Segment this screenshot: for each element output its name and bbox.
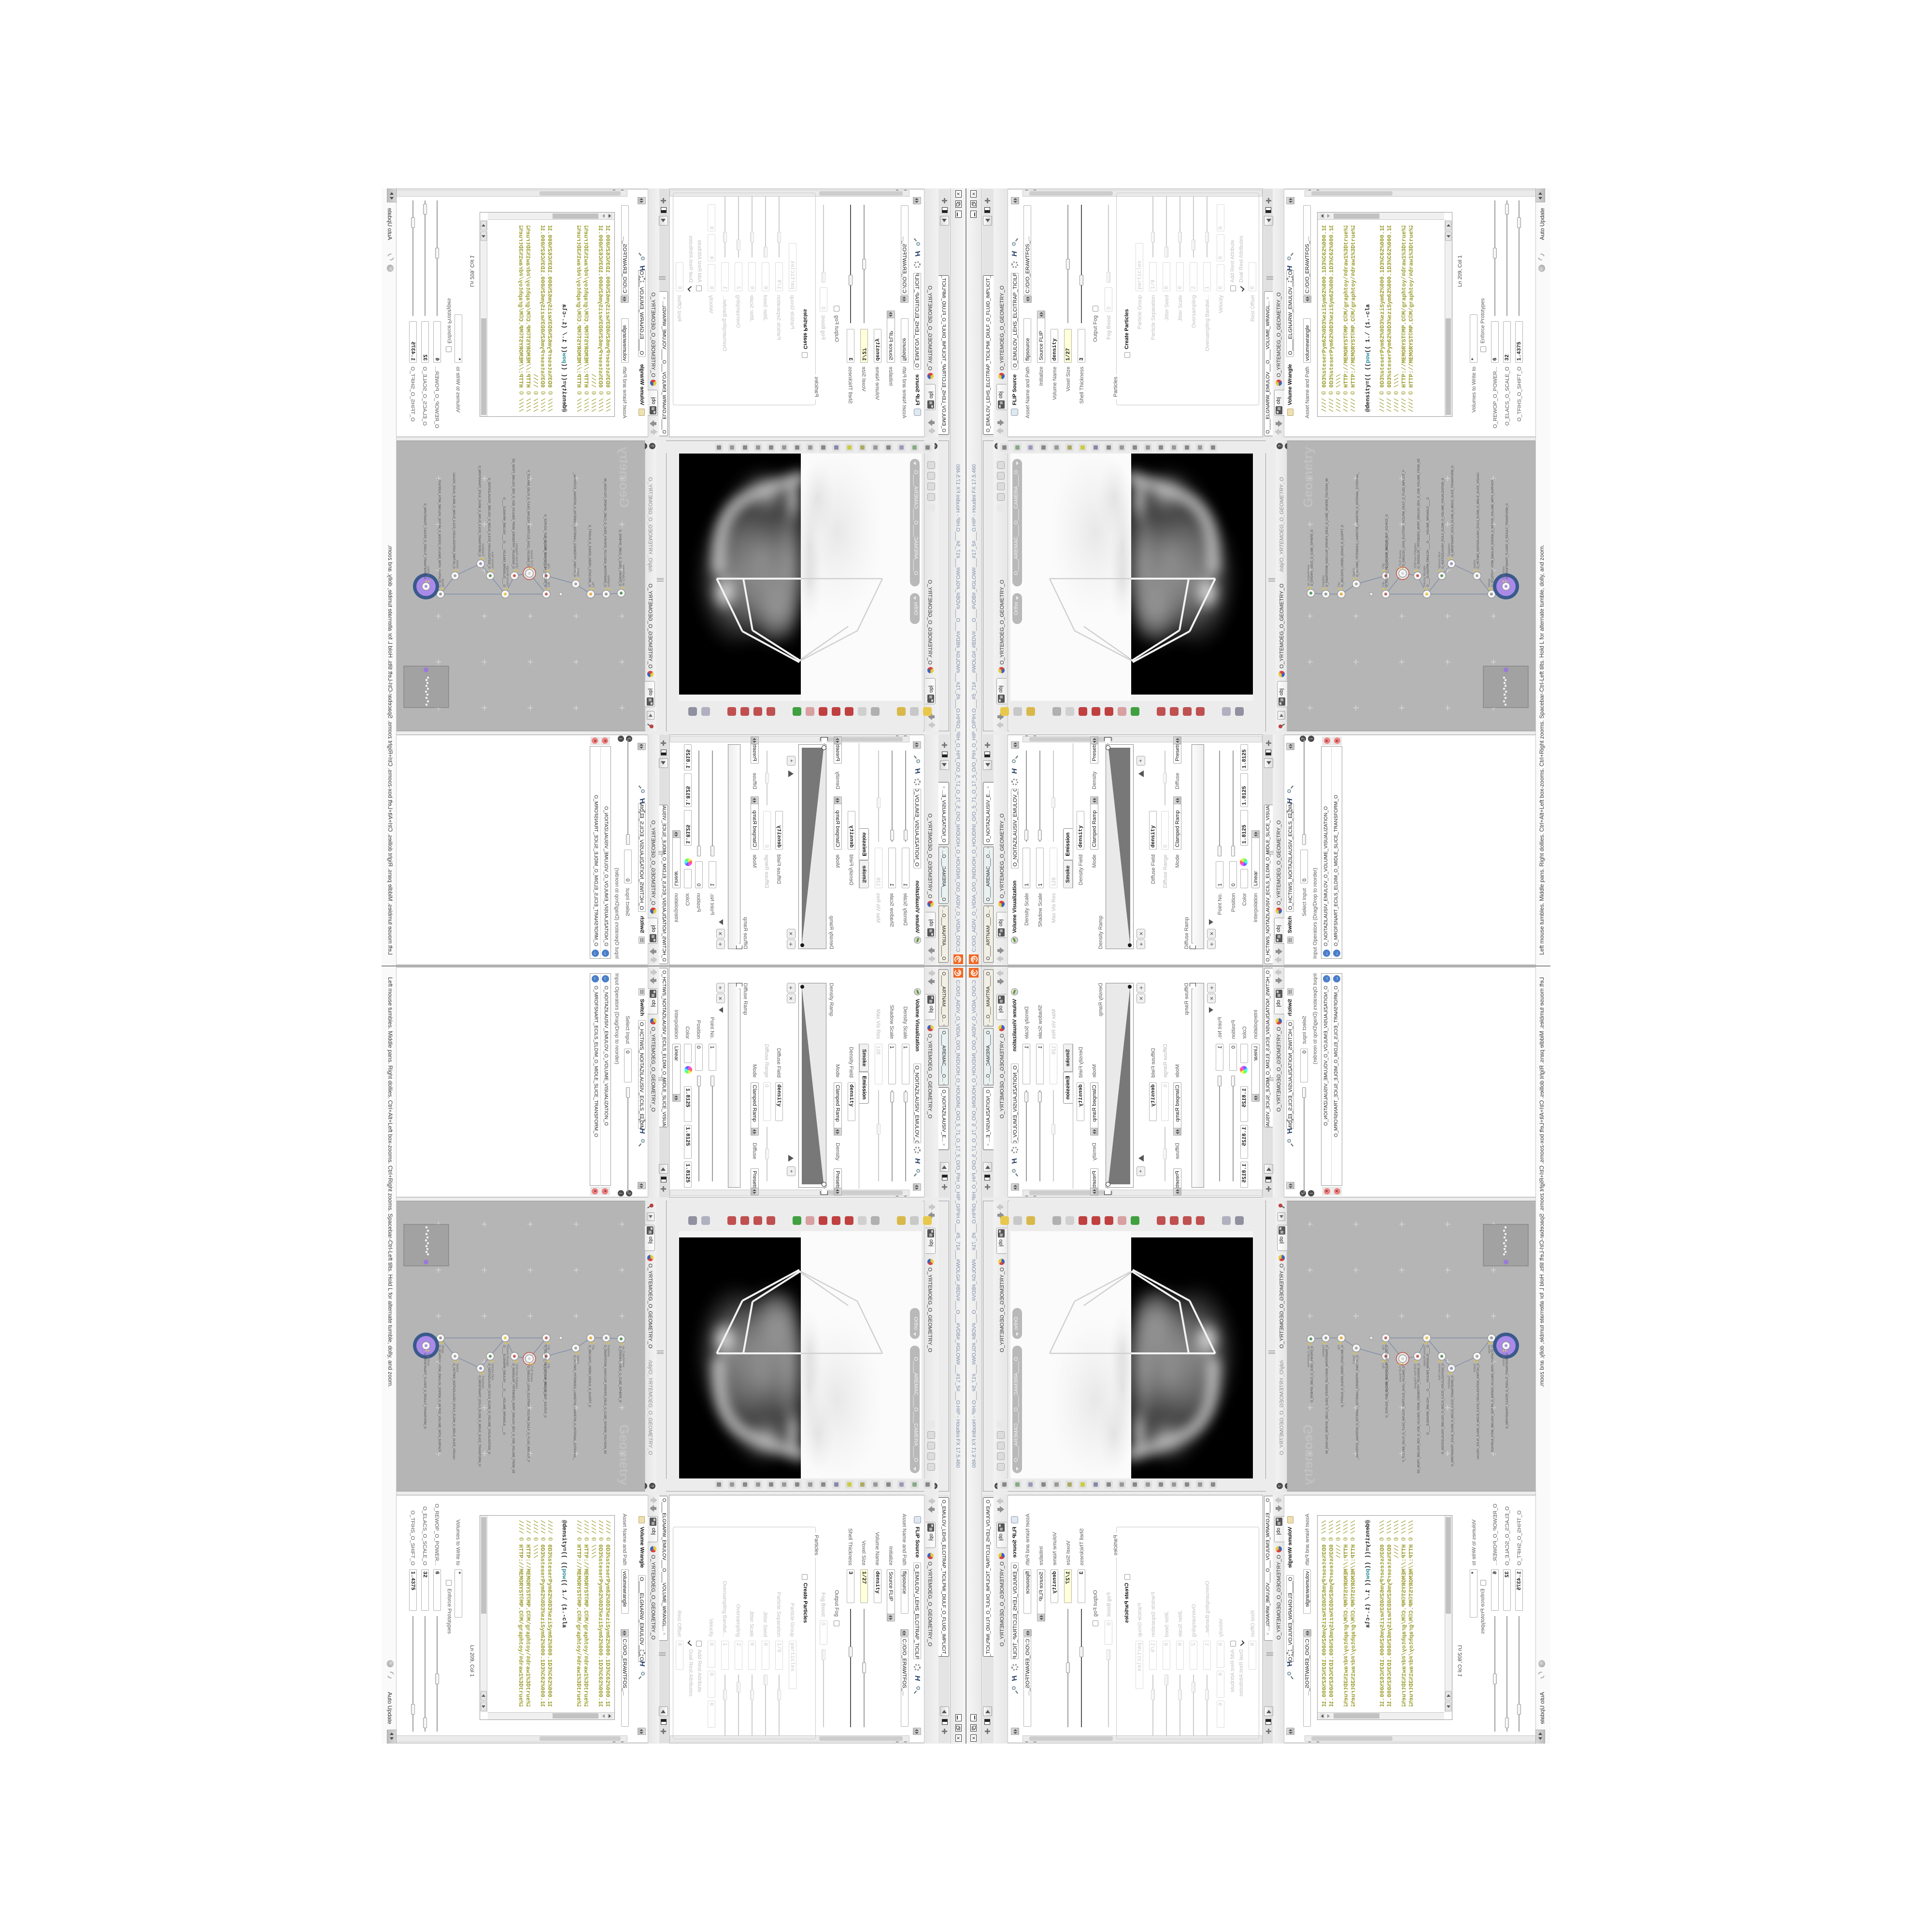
svg-text:O_JBO.DATS_LREBO_GENUS_O_SLOPP: O_JBO.DATS_LREBO_GENUS_O_SLOPPT_O <box>1341 1345 1344 1407</box>
svg-text:an_CubeSphere: an_CubeSphere <box>622 1346 625 1367</box>
svg-text:PolyWire: PolyWire <box>1322 1345 1325 1357</box>
svg-text:O_MROFSNART_ECILS_ELDIM_O_MIDL: O_MROFSNART_ECILS_ELDIM_O_MIDLE_SLICE_TR… <box>1451 466 1454 556</box>
svg-text:Merge: Merge <box>1488 578 1491 587</box>
svg-text:O_SNOGILOP_YRTEMOEG_MORF_EMULO: O_SNOGILOP_YRTEMOEG_MORF_EMULOV_BDV_O_VD… <box>1418 1364 1421 1474</box>
svg-text:Merge: Merge <box>441 1345 444 1354</box>
svg-text:O_ECAFRUS_HTIW_EMULOV_EGREM_O_: O_ECAFRUS_HTIW_EMULOV_EGREM_O_MERGE_VOLU… <box>1492 1345 1494 1454</box>
svg-text:Switch: Switch <box>576 568 579 577</box>
svg-text:O_EMULOV_LEHS_ELCITRAP_TICILPM: O_EMULOV_LEHS_ELCITRAP_TICILPMI_DIULF_O_… <box>1403 1366 1406 1462</box>
svg-text:O____ELGNARW_EMULOV____O____VO: O____ELGNARW_EMULOV____O____VOLUME_WRANG… <box>1427 497 1430 587</box>
svg-text:PolyWire: PolyWire <box>607 575 610 587</box>
svg-text:O_HCTIWS_YRTEMOEG_LANRETXE_LAN: O_HCTIWS_YRTEMOEG_LANRETXE_LANRETNI_O_IN… <box>1356 472 1359 577</box>
svg-text:Switch: Switch <box>1353 568 1356 577</box>
svg-text:O_EMULOV_LEHS_ELCITRAP_TICILPM: O_EMULOV_LEHS_ELCITRAP_TICILPMI_DIULF_O_… <box>526 470 529 566</box>
svg-text:Volume Slice: Volume Slice <box>491 552 494 568</box>
svg-text:O_HCTIWS_NOITAZILAUSIV_ECILS_E: O_HCTIWS_NOITAZILAUSIV_ECILS_ELDIM_O_MID… <box>452 472 455 568</box>
svg-text:PolyWire: PolyWire <box>607 1345 610 1357</box>
svg-text:O_EREHPS_EBUC_D_CUBE_SPHERE_O: O_EREHPS_EBUC_D_CUBE_SPHERE_O <box>1311 1346 1314 1403</box>
svg-text:O_SNOGILOP_YRTEMOEG_MORF_EMULO: O_SNOGILOP_YRTEMOEG_MORF_EMULOV_BDV_O_VD… <box>511 1364 514 1474</box>
svg-text:Clip: Clip <box>1382 563 1385 568</box>
svg-text:VDB from Polygons: VDB from Polygons <box>515 543 518 568</box>
svg-text:Switch: Switch <box>455 1364 458 1372</box>
svg-text:O_ECAFRUS_HTIW_EMULOV_EGREM_O_: O_ECAFRUS_HTIW_EMULOV_EGREM_O_MERGE_VOLU… <box>1492 478 1494 587</box>
svg-text:Geometry: Geometry <box>617 1424 631 1485</box>
svg-text:Switch: Switch <box>576 1355 579 1364</box>
svg-text:O_MROFSNART_TLUSER_O_RESULT_TR: O_MROFSNART_TLUSER_O_RESULT_TRANSFORM_O <box>1506 503 1509 579</box>
svg-text:Transform: Transform <box>481 543 484 556</box>
svg-text:FLIP Source: FLIP Source <box>530 550 533 566</box>
svg-text:O_EMULOV_LEHS_ELCITRAP_TICILPM: O_EMULOV_LEHS_ELCITRAP_TICILPMI_DIULF_O_… <box>1403 470 1406 566</box>
svg-text:O_HCTIWS_YRTEMOEG_LANRETXE_LAN: O_HCTIWS_YRTEMOEG_LANRETXE_LANRETNI_O_IN… <box>1356 1355 1359 1460</box>
svg-text:O_JBO.DATS_LREBO_GENUS_O_SLOPP: O_JBO.DATS_LREBO_GENUS_O_SLOPPT_O <box>1341 525 1344 587</box>
svg-text:O_ECAFRUS_HTIW_EMULOV_EGREM_O_: O_ECAFRUS_HTIW_EMULOV_EGREM_O_MERGE_VOLU… <box>438 478 440 587</box>
svg-text:O_EMARFERIW_NOGYLOP_EREHPS_EBU: O_EMARFERIW_NOGYLOP_EREHPS_EBUC_O_CUBE_S… <box>603 478 606 587</box>
svg-text:Volume Wrangle: Volume Wrangle <box>506 565 509 587</box>
svg-text:O_EGDIRB_PILC_O_CLIP_BRIDGE_O: O_EGDIRB_PILC_O_CLIP_BRIDGE_O <box>1386 535 1389 587</box>
svg-text:Clip: Clip <box>547 582 550 587</box>
svg-text:Transform: Transform <box>426 1353 429 1366</box>
svg-text:O_MROFSNART_ECILS_ELDIM_O_MIDL: O_MROFSNART_ECILS_ELDIM_O_MIDLE_SLICE_TR… <box>478 1376 481 1466</box>
svg-text:O_JBO.DATS_LREBO_GENUS_O_SLOPP: O_JBO.DATS_LREBO_GENUS_O_SLOPPT_O <box>588 1345 591 1407</box>
svg-text:O_HCTIWS_NOITAZILAUSIV_ECILS_E: O_HCTIWS_NOITAZILAUSIV_ECILS_ELDIM_O_MID… <box>1477 472 1480 568</box>
svg-text:Merge: Merge <box>1488 1345 1491 1354</box>
svg-text:O_HCTIWS_YRTEMOEG_LANRETXE_LAN: O_HCTIWS_YRTEMOEG_LANRETXE_LANRETNI_O_IN… <box>573 1355 576 1460</box>
svg-text:Volume Wrangle: Volume Wrangle <box>1423 1345 1426 1367</box>
svg-text:O_ECAFRUS_HTIW_EMULOV_EGREM_O_: O_ECAFRUS_HTIW_EMULOV_EGREM_O_MERGE_VOLU… <box>438 1345 440 1454</box>
svg-text:O_MROFSNART_TLUSER_O_RESULT_TR: O_MROFSNART_TLUSER_O_RESULT_TRANSFORM_O <box>423 503 426 579</box>
svg-text:O_EGDIRB_PILC_O_CLIP_BRIDGE_O: O_EGDIRB_PILC_O_CLIP_BRIDGE_O <box>543 535 546 587</box>
svg-text:Clip: Clip <box>1382 1345 1385 1350</box>
svg-text:O_EMULOV_LEHS_ELCITRAP_TICILPM: O_EMULOV_LEHS_ELCITRAP_TICILPMI_DIULF_O_… <box>526 1366 529 1462</box>
svg-text:Switch: Switch <box>1474 1364 1477 1372</box>
svg-text:Clip: Clip <box>1382 1364 1385 1369</box>
svg-text:Transform: Transform <box>1503 1353 1506 1366</box>
svg-text:O_NOITAZILAUSIV_ECILS_ELDIM_O_: O_NOITAZILAUSIV_ECILS_ELDIM_O_VOLUME_VIS… <box>1442 1364 1445 1454</box>
svg-text:O_EREHPS_EBUC_D_CUBE_SPHERE_O: O_EREHPS_EBUC_D_CUBE_SPHERE_O <box>618 529 621 586</box>
svg-text:Volume Slice: Volume Slice <box>1438 552 1441 568</box>
svg-text:O____ELGNARW_EMULOV____O____VO: O____ELGNARW_EMULOV____O____VOLUME_WRANG… <box>502 1345 505 1435</box>
svg-text:O_MROFSNART_ECILS_ELDIM_O_MIDL: O_MROFSNART_ECILS_ELDIM_O_MIDLE_SLICE_TR… <box>478 466 481 556</box>
svg-text:O____ELGNARW_EMULOV____O____VO: O____ELGNARW_EMULOV____O____VOLUME_WRANG… <box>1427 1345 1430 1435</box>
svg-text:O_NOITAZILAUSIV_ECILS_ELDIM_O_: O_NOITAZILAUSIV_ECILS_ELDIM_O_VOLUME_VIS… <box>487 1364 490 1454</box>
svg-text:O_NOITAZILAUSIV_ECILS_ELDIM_O_: O_NOITAZILAUSIV_ECILS_ELDIM_O_VOLUME_VIS… <box>1442 478 1445 568</box>
svg-text:Transform: Transform <box>1448 543 1451 556</box>
svg-text:Transform: Transform <box>481 1376 484 1389</box>
svg-text:FLIP Source: FLIP Source <box>530 1366 533 1382</box>
svg-text:File: File <box>591 1345 594 1350</box>
svg-text:Clip: Clip <box>547 1364 550 1369</box>
svg-text:FLIP Source: FLIP Source <box>1399 550 1402 566</box>
svg-text:an_CubeSphere: an_CubeSphere <box>1307 565 1310 586</box>
svg-text:PolyWire: PolyWire <box>1322 575 1325 587</box>
svg-text:FLIP Source: FLIP Source <box>1399 1366 1402 1382</box>
svg-text:Clip: Clip <box>547 1345 550 1350</box>
svg-text:O_EREHPS_EBUC_D_CUBE_SPHERE_O: O_EREHPS_EBUC_D_CUBE_SPHERE_O <box>1311 529 1314 586</box>
svg-text:File: File <box>591 582 594 587</box>
svg-text:Geometry: Geometry <box>1301 1424 1315 1485</box>
svg-text:Transform: Transform <box>1448 1376 1451 1389</box>
svg-text:Switch: Switch <box>455 560 458 568</box>
svg-text:Volume Wrangle: Volume Wrangle <box>506 1345 509 1367</box>
svg-text:Geometry: Geometry <box>617 447 631 508</box>
svg-text:O_EGDIRB_PILC_O_CLIP_BRIDGE_O: O_EGDIRB_PILC_O_CLIP_BRIDGE_O <box>543 1345 546 1397</box>
svg-text:Volume Slice: Volume Slice <box>491 1364 494 1380</box>
svg-text:File: File <box>1338 582 1341 587</box>
svg-text:Clip: Clip <box>1382 582 1385 587</box>
svg-text:an_CubeSphere: an_CubeSphere <box>1307 1346 1310 1367</box>
svg-text:Volume Wrangle: Volume Wrangle <box>1423 565 1426 587</box>
svg-text:VDB from Polygons: VDB from Polygons <box>1414 1364 1417 1389</box>
svg-text:O_HCTIWS_YRTEMOEG_LANRETXE_LAN: O_HCTIWS_YRTEMOEG_LANRETXE_LANRETNI_O_IN… <box>573 472 576 577</box>
svg-text:O_MROFSNART_ECILS_ELDIM_O_MIDL: O_MROFSNART_ECILS_ELDIM_O_MIDLE_SLICE_TR… <box>1451 1376 1454 1466</box>
svg-text:Transform: Transform <box>426 566 429 579</box>
svg-text:Volume Slice: Volume Slice <box>1438 1364 1441 1380</box>
svg-text:Clip: Clip <box>547 563 550 568</box>
svg-text:O_HCTIWS_NOITAZILAUSIV_ECILS_E: O_HCTIWS_NOITAZILAUSIV_ECILS_ELDIM_O_MID… <box>1477 1364 1480 1460</box>
svg-text:O_MROFSNART_TLUSER_O_RESULT_TR: O_MROFSNART_TLUSER_O_RESULT_TRANSFORM_O <box>423 1353 426 1429</box>
svg-text:an_CubeSphere: an_CubeSphere <box>622 565 625 586</box>
svg-text:O_JBO.DATS_LREBO_GENUS_O_SLOPP: O_JBO.DATS_LREBO_GENUS_O_SLOPPT_O <box>588 525 591 587</box>
svg-text:O_EMARFERIW_NOGYLOP_EREHPS_EBU: O_EMARFERIW_NOGYLOP_EREHPS_EBUC_O_CUBE_S… <box>603 1345 606 1454</box>
svg-text:O_EGDIRB_PILC_O_CLIP_BRIDGE_O: O_EGDIRB_PILC_O_CLIP_BRIDGE_O <box>1386 1345 1389 1397</box>
svg-text:Switch: Switch <box>1474 560 1477 568</box>
svg-text:Geometry: Geometry <box>1301 447 1315 508</box>
svg-text:O_MROFSNART_TLUSER_O_RESULT_TR: O_MROFSNART_TLUSER_O_RESULT_TRANSFORM_O <box>1506 1353 1509 1429</box>
svg-text:File: File <box>1338 1345 1341 1350</box>
svg-text:O____ELGNARW_EMULOV____O____VO: O____ELGNARW_EMULOV____O____VOLUME_WRANG… <box>502 497 505 587</box>
svg-text:Switch: Switch <box>1353 1355 1356 1364</box>
svg-text:O_EMARFERIW_NOGYLOP_EREHPS_EBU: O_EMARFERIW_NOGYLOP_EREHPS_EBUC_O_CUBE_S… <box>1326 1345 1329 1454</box>
svg-text:Transform: Transform <box>1503 566 1506 579</box>
svg-text:O_HCTIWS_NOITAZILAUSIV_ECILS_E: O_HCTIWS_NOITAZILAUSIV_ECILS_ELDIM_O_MID… <box>452 1364 455 1460</box>
svg-text:Merge: Merge <box>441 578 444 587</box>
svg-text:O_NOITAZILAUSIV_ECILS_ELDIM_O_: O_NOITAZILAUSIV_ECILS_ELDIM_O_VOLUME_VIS… <box>487 478 490 568</box>
svg-text:O_SNOGILOP_YRTEMOEG_MORF_EMULO: O_SNOGILOP_YRTEMOEG_MORF_EMULOV_BDV_O_VD… <box>1418 458 1421 568</box>
svg-text:VDB from Polygons: VDB from Polygons <box>515 1364 518 1389</box>
svg-text:O_EREHPS_EBUC_D_CUBE_SPHERE_O: O_EREHPS_EBUC_D_CUBE_SPHERE_O <box>618 1346 621 1403</box>
svg-text:O_SNOGILOP_YRTEMOEG_MORF_EMULO: O_SNOGILOP_YRTEMOEG_MORF_EMULOV_BDV_O_VD… <box>511 458 514 568</box>
svg-text:VDB from Polygons: VDB from Polygons <box>1414 543 1417 568</box>
svg-text:O_EMARFERIW_NOGYLOP_EREHPS_EBU: O_EMARFERIW_NOGYLOP_EREHPS_EBUC_O_CUBE_S… <box>1326 478 1329 587</box>
